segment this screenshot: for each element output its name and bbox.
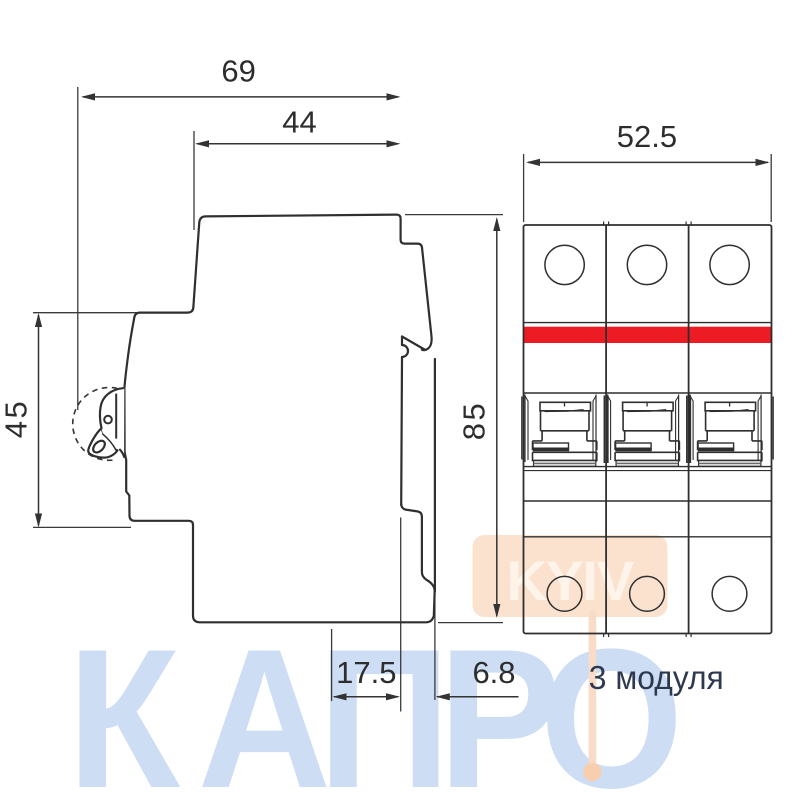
svg-text:17.5: 17.5 bbox=[336, 655, 396, 690]
svg-text:KYIV: KYIV bbox=[507, 549, 634, 612]
svg-text:6.8: 6.8 bbox=[472, 655, 515, 690]
svg-text:3 модуля: 3 модуля bbox=[589, 659, 724, 696]
svg-text:52.5: 52.5 bbox=[617, 119, 677, 154]
svg-text:85: 85 bbox=[457, 401, 492, 440]
svg-text:44: 44 bbox=[282, 105, 316, 140]
svg-text:45: 45 bbox=[0, 399, 33, 438]
svg-text:69: 69 bbox=[221, 54, 255, 89]
